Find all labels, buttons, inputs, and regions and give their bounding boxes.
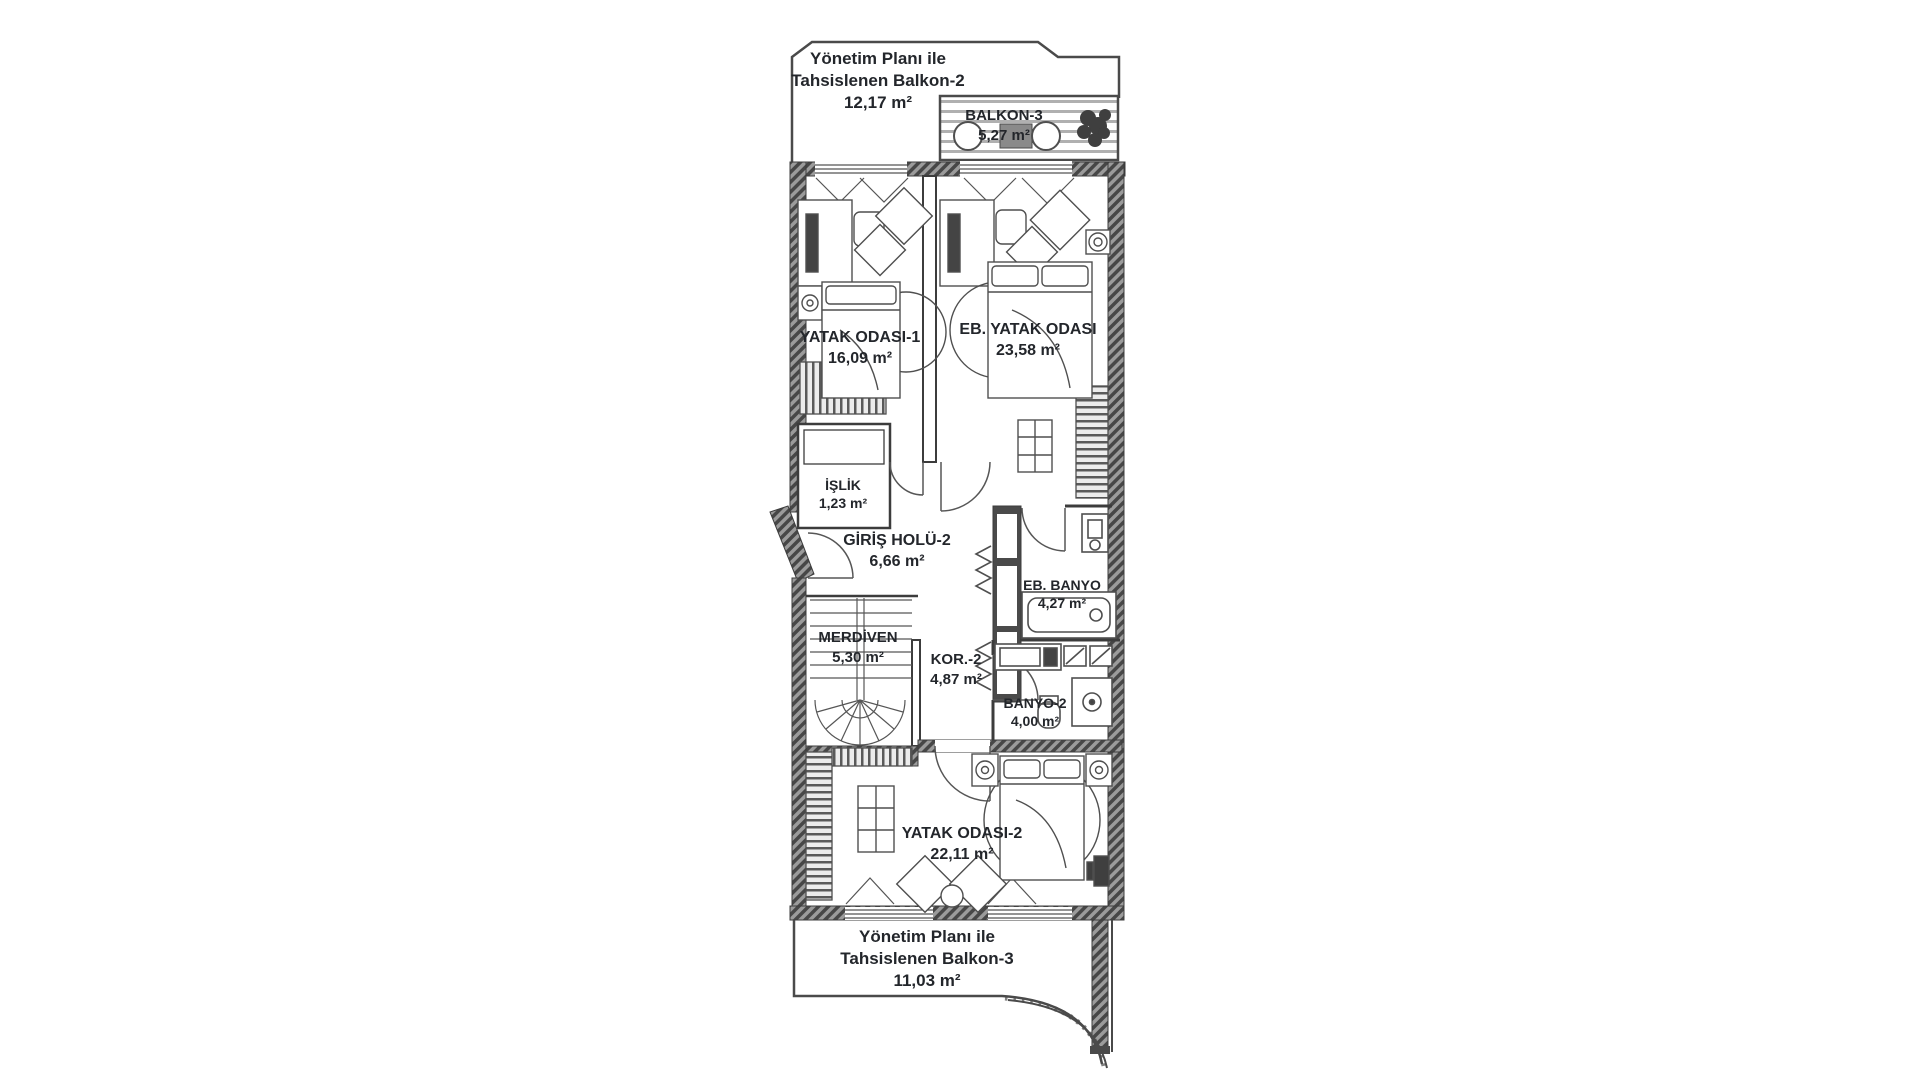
room-name: Yönetim Planı ile: [791, 48, 965, 70]
shower-icon: [1072, 678, 1112, 726]
room-name: İŞLİK: [819, 476, 867, 494]
door-arc: [1022, 508, 1065, 551]
room-area: 23,58 m²: [959, 341, 1096, 362]
window: [988, 907, 1072, 920]
room-area: 22,11 m²: [902, 845, 1023, 866]
room-area: 6,66 m²: [843, 552, 951, 573]
room-name: BALKON-3: [965, 106, 1043, 126]
floor-plan-drawing: [0, 0, 1920, 1080]
room-name: Tahsislenen Balkon-3: [840, 948, 1014, 970]
tv-icon: [948, 214, 960, 272]
room-label-balkon-2: Yönetim Planı ile Tahsislenen Balkon-2 1…: [791, 48, 965, 114]
room-label-kor-2: KOR.-2 4,87 m²: [930, 650, 982, 689]
washer-icon: [1090, 646, 1112, 666]
room-label-yatak-odasi-2: YATAK ODASI-2 22,11 m²: [902, 824, 1023, 866]
room-area: 5,30 m²: [818, 648, 897, 668]
room-area: 4,00 m²: [1003, 712, 1066, 730]
room-name: YATAK ODASI-2: [902, 824, 1023, 845]
door-arc: [890, 462, 923, 495]
wardrobe-icon: [1076, 386, 1108, 498]
room-name: EB. YATAK ODASI: [959, 320, 1096, 341]
window: [815, 161, 907, 177]
room-name: YATAK ODASI-1: [800, 328, 921, 349]
room-label-giris-holu-2: GİRİŞ HOLÜ-2 6,66 m²: [843, 531, 951, 573]
room-area: 16,09 m²: [800, 349, 921, 370]
floor-plan: Yönetim Planı ile Tahsislenen Balkon-2 1…: [0, 0, 1920, 1080]
room-name: KOR.-2: [930, 650, 982, 670]
room-label-islik: İŞLİK 1,23 m²: [819, 476, 867, 512]
room-name: GİRİŞ HOLÜ-2: [843, 531, 951, 552]
closet-icon: [832, 748, 912, 766]
room-label-eb-banyo: EB. BANYO 4,27 m²: [1023, 576, 1101, 612]
room-name: MERDİVEN: [818, 628, 897, 648]
room-label-merdiven: MERDİVEN 5,30 m²: [818, 628, 897, 667]
room-label-balkon-3-bottom: Yönetim Planı ile Tahsislenen Balkon-3 1…: [840, 926, 1014, 992]
window: [960, 161, 1072, 177]
room-area: 4,87 m²: [930, 670, 982, 690]
washer-icon: [1064, 646, 1086, 666]
room-name: Yönetim Planı ile: [840, 926, 1014, 948]
room-area: 5,27 m²: [965, 126, 1043, 146]
room-area: 4,27 m²: [1023, 594, 1101, 612]
room-area: 11,03 m²: [840, 970, 1014, 992]
window: [845, 907, 933, 920]
room-area: 1,23 m²: [819, 494, 867, 512]
room-name: Tahsislenen Balkon-2: [791, 70, 965, 92]
speaker-icon: [1087, 856, 1109, 886]
tv-icon: [806, 214, 818, 272]
stairs: [810, 598, 912, 745]
room-label-eb-yatak-odasi: EB. YATAK ODASI 23,58 m²: [959, 320, 1096, 362]
room-label-banyo-2: BANYO-2 4,00 m²: [1003, 694, 1066, 730]
room-label-balkon-3-top: BALKON-3 5,27 m²: [965, 106, 1043, 145]
room-name: BANYO-2: [1003, 694, 1066, 712]
door-arc: [941, 462, 990, 511]
round-table-icon: [941, 885, 963, 907]
room-name: EB. BANYO: [1023, 576, 1101, 594]
room-label-yatak-odasi-1: YATAK ODASI-1 16,09 m²: [800, 328, 921, 370]
wardrobe-icon: [806, 752, 832, 900]
room-area: 12,17 m²: [791, 92, 965, 114]
